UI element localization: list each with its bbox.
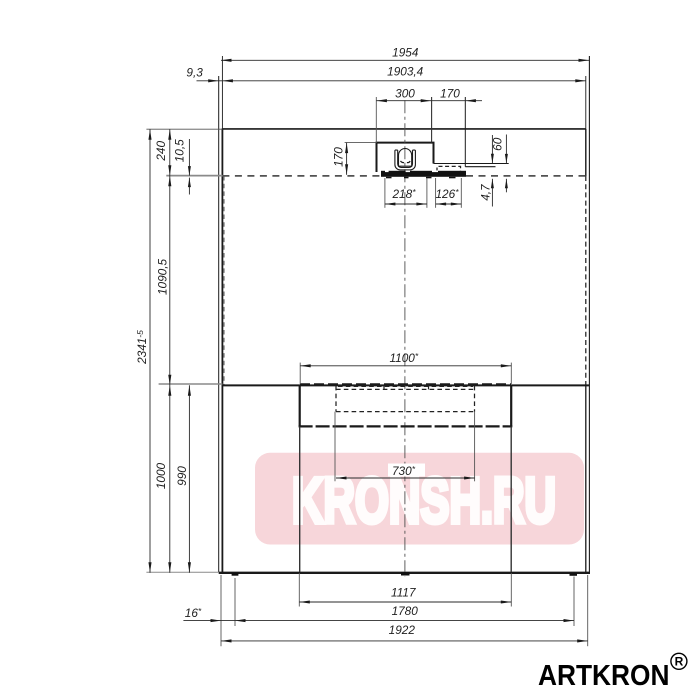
svg-text:4,7: 4,7 [479, 184, 493, 201]
svg-text:170: 170 [440, 87, 460, 101]
svg-text:10,5: 10,5 [173, 139, 187, 162]
svg-text:1117: 1117 [391, 585, 416, 599]
svg-text:300: 300 [395, 87, 415, 101]
svg-text:1000: 1000 [154, 462, 168, 489]
svg-text:240: 240 [154, 141, 168, 162]
svg-text:R: R [675, 655, 684, 669]
svg-text:1903,4: 1903,4 [387, 64, 424, 78]
svg-text:1954: 1954 [392, 45, 419, 59]
svg-text:1100*: 1100* [389, 351, 418, 365]
svg-text:990: 990 [175, 466, 189, 486]
svg-text:1090,5: 1090,5 [155, 259, 169, 296]
svg-text:170: 170 [331, 147, 345, 167]
svg-text:1780: 1780 [392, 604, 419, 618]
svg-text:60: 60 [491, 137, 505, 151]
svg-text:1922: 1922 [389, 623, 416, 637]
svg-text:9,3: 9,3 [186, 66, 203, 80]
svg-text:ARTKRON: ARTKRON [538, 660, 670, 692]
